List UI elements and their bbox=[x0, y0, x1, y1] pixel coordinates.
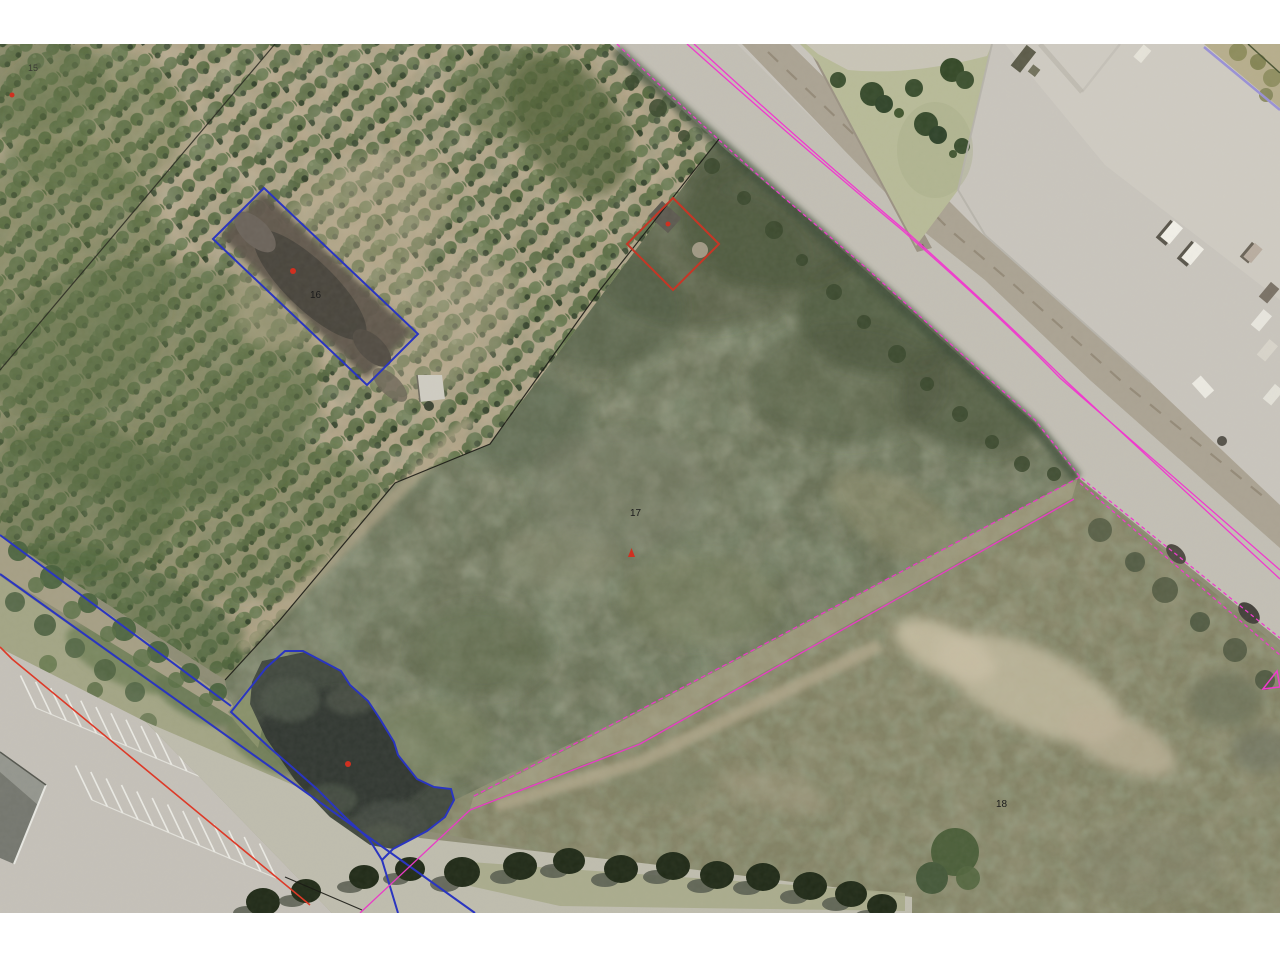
svg-text:15: 15 bbox=[28, 63, 38, 73]
svg-text:16: 16 bbox=[310, 290, 322, 301]
svg-text:17: 17 bbox=[630, 508, 642, 519]
svg-text:18: 18 bbox=[996, 799, 1008, 810]
